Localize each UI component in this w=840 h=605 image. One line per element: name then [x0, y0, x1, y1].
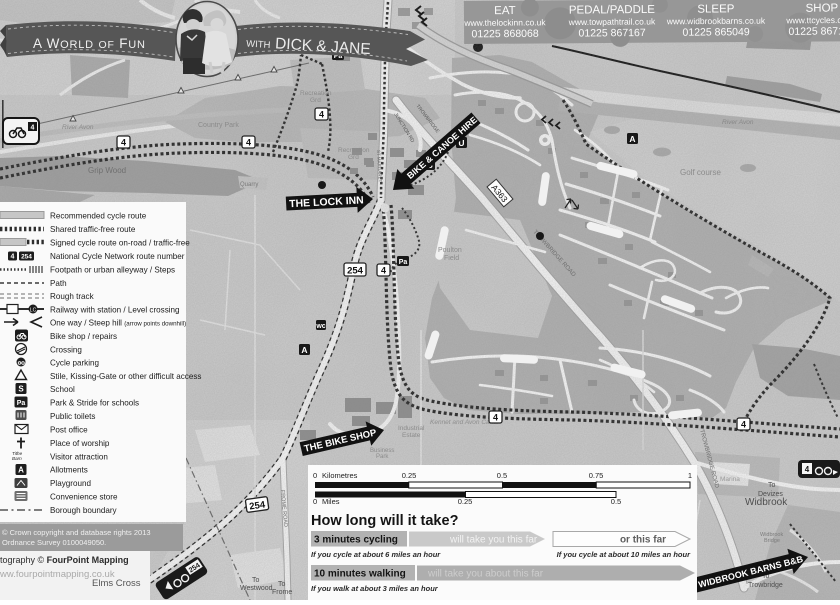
svg-text:Borough boundary: Borough boundary	[50, 506, 118, 515]
svg-text:Public toilets: Public toilets	[50, 412, 95, 421]
svg-text:Pa: Pa	[17, 400, 26, 407]
svg-text:4: 4	[741, 420, 746, 430]
svg-text:EAT: EAT	[494, 5, 516, 17]
svg-text:Playground: Playground	[50, 479, 91, 488]
svg-text:4: 4	[805, 465, 810, 474]
svg-text:wc: wc	[315, 323, 325, 330]
svg-text:A: A	[629, 134, 635, 144]
svg-text:Post office: Post office	[50, 426, 88, 435]
svg-text:254: 254	[347, 266, 364, 277]
svg-text:0.5: 0.5	[611, 497, 621, 506]
svg-text:Estate: Estate	[402, 432, 421, 439]
svg-text:0: 0	[313, 497, 317, 506]
svg-text:© Crown copyright and database: © Crown copyright and database rights 20…	[2, 528, 151, 537]
svg-text:will take you this far: will take you this far	[449, 535, 538, 546]
svg-text:www.ttcycles.co.uk: www.ttcycles.co.uk	[785, 15, 840, 26]
svg-text:Kilometres: Kilometres	[322, 471, 358, 480]
svg-text:How long will it take?: How long will it take?	[311, 513, 459, 529]
svg-text:Grip Wood: Grip Wood	[88, 166, 126, 175]
svg-text:Shared traffic-free route: Shared traffic-free route	[50, 225, 136, 234]
svg-text:Country Park: Country Park	[198, 122, 239, 129]
svg-text:will take you about this far: will take you about this far	[427, 569, 544, 580]
svg-text:To: To	[278, 581, 286, 588]
svg-text:Recommended cycle route: Recommended cycle route	[50, 212, 147, 221]
svg-text:Bike shop / repairs: Bike shop / repairs	[50, 332, 117, 341]
svg-text:Marina: Marina	[720, 476, 740, 483]
svg-text:Grd: Grd	[310, 97, 321, 104]
svg-text:SLEEP: SLEEP	[697, 3, 735, 15]
svg-text:Industrial: Industrial	[398, 425, 425, 432]
svg-text:01225 865049: 01225 865049	[682, 26, 749, 39]
svg-text:Footpath or urban alleyway / S: Footpath or urban alleyway / Steps	[50, 266, 175, 275]
svg-text:Convenience store: Convenience store	[50, 493, 118, 502]
svg-text:or this far: or this far	[620, 535, 666, 546]
svg-text:Recreation: Recreation	[338, 147, 370, 154]
svg-text:If you cycle at about 6 miles: If you cycle at about 6 miles an hour	[311, 550, 441, 559]
svg-text:4: 4	[11, 254, 15, 261]
svg-text:National Cycle Network route n: National Cycle Network route number	[50, 252, 185, 261]
svg-text:Poulton: Poulton	[438, 247, 462, 254]
svg-text:0.25: 0.25	[402, 471, 417, 480]
svg-text:PEDAL/PADDLE: PEDAL/PADDLE	[569, 4, 655, 17]
svg-text:www.towpathtrail.co.uk: www.towpathtrail.co.uk	[568, 16, 656, 27]
svg-text:4: 4	[381, 266, 386, 276]
svg-text:254: 254	[249, 499, 267, 512]
svg-text:Path: Path	[50, 279, 67, 288]
svg-text:If you walk at about 3 miles a: If you walk at about 3 miles an hour	[311, 584, 439, 593]
svg-text:River Avon: River Avon	[722, 119, 754, 126]
svg-text:Park & Stride for schools: Park & Stride for schools	[50, 399, 139, 408]
svg-text:Stile, Kissing-Gate or other d: Stile, Kissing-Gate or other difficult a…	[50, 372, 201, 381]
svg-text:01225 867187: 01225 867187	[788, 25, 840, 38]
svg-text:Crossing: Crossing	[50, 346, 82, 355]
svg-text:254: 254	[21, 254, 32, 261]
svg-text:1: 1	[688, 471, 692, 480]
svg-text:Golf course: Golf course	[680, 168, 721, 177]
svg-text:01225 867167: 01225 867167	[578, 27, 645, 40]
svg-text:Westwood: Westwood	[240, 585, 273, 592]
svg-text:A: A	[301, 345, 307, 355]
svg-text:0.5: 0.5	[497, 471, 507, 480]
svg-text:Ordnance Survey 0100049050.: Ordnance Survey 0100049050.	[2, 538, 106, 547]
svg-text:Widbrook: Widbrook	[745, 497, 788, 508]
svg-text:If you cycle at about 10 miles: If you cycle at about 10 miles an hour	[557, 550, 691, 559]
svg-text:Recreation: Recreation	[300, 90, 332, 97]
svg-text:3 minutes cycling: 3 minutes cycling	[314, 535, 398, 546]
svg-text:Allotments: Allotments	[50, 466, 88, 475]
svg-text:www.thelockinn.co.uk: www.thelockinn.co.uk	[463, 17, 546, 28]
svg-text:Trowbridge: Trowbridge	[748, 582, 783, 589]
svg-text:www.widbrookbarns.co.uk: www.widbrookbarns.co.uk	[666, 16, 766, 27]
svg-text:Elms Cross: Elms Cross	[92, 578, 141, 589]
svg-text:01225 868068: 01225 868068	[471, 28, 538, 41]
svg-text:Cycle parking: Cycle parking	[50, 359, 99, 368]
svg-text:0.75: 0.75	[589, 471, 604, 480]
svg-text:Frome: Frome	[272, 589, 292, 596]
svg-text:Rough track: Rough track	[50, 292, 95, 301]
svg-text:Quarry: Quarry	[240, 182, 258, 188]
svg-text:4: 4	[121, 138, 126, 148]
svg-text:4: 4	[246, 138, 251, 148]
svg-text:Place of worship: Place of worship	[50, 439, 110, 448]
svg-text:Devizes: Devizes	[758, 491, 783, 498]
svg-text:A WORLD OF FUN: A WORLD OF FUN	[33, 36, 146, 51]
svg-text:0.25: 0.25	[458, 497, 473, 506]
svg-text:tography © FourPoint Mapping: tography © FourPoint Mapping	[0, 555, 129, 565]
svg-text:Visitor attraction: Visitor attraction	[50, 453, 108, 462]
svg-text:Grd: Grd	[348, 154, 359, 161]
svg-text:LC: LC	[30, 308, 37, 314]
svg-text:4: 4	[319, 110, 324, 120]
svg-text:Railway with station / Level c: Railway with station / Level crossing	[50, 306, 180, 315]
svg-text:River Avon: River Avon	[62, 124, 94, 131]
svg-text:Signed cycle route on-road / t: Signed cycle route on-road / traffic-fre…	[50, 239, 190, 248]
svg-text:To: To	[768, 482, 776, 489]
svg-text:One way / Steep hill (arrow po: One way / Steep hill (arrow points downh…	[50, 319, 186, 328]
svg-text:School: School	[50, 385, 75, 394]
svg-text:Miles: Miles	[322, 497, 340, 506]
svg-text:4: 4	[493, 413, 498, 423]
svg-text:10 minutes walking: 10 minutes walking	[314, 569, 406, 580]
svg-text:A: A	[18, 466, 24, 475]
svg-text:Pa: Pa	[399, 259, 408, 266]
svg-text:0: 0	[313, 471, 317, 480]
svg-text:Field: Field	[444, 255, 459, 262]
svg-text:Bridge: Bridge	[764, 538, 780, 544]
svg-text:SHOP: SHOP	[806, 2, 839, 14]
svg-text:To: To	[252, 577, 260, 584]
svg-text:4: 4	[31, 125, 35, 132]
svg-text:Park: Park	[376, 454, 389, 460]
svg-text:S: S	[18, 385, 24, 394]
svg-text:Barn: Barn	[12, 456, 22, 461]
